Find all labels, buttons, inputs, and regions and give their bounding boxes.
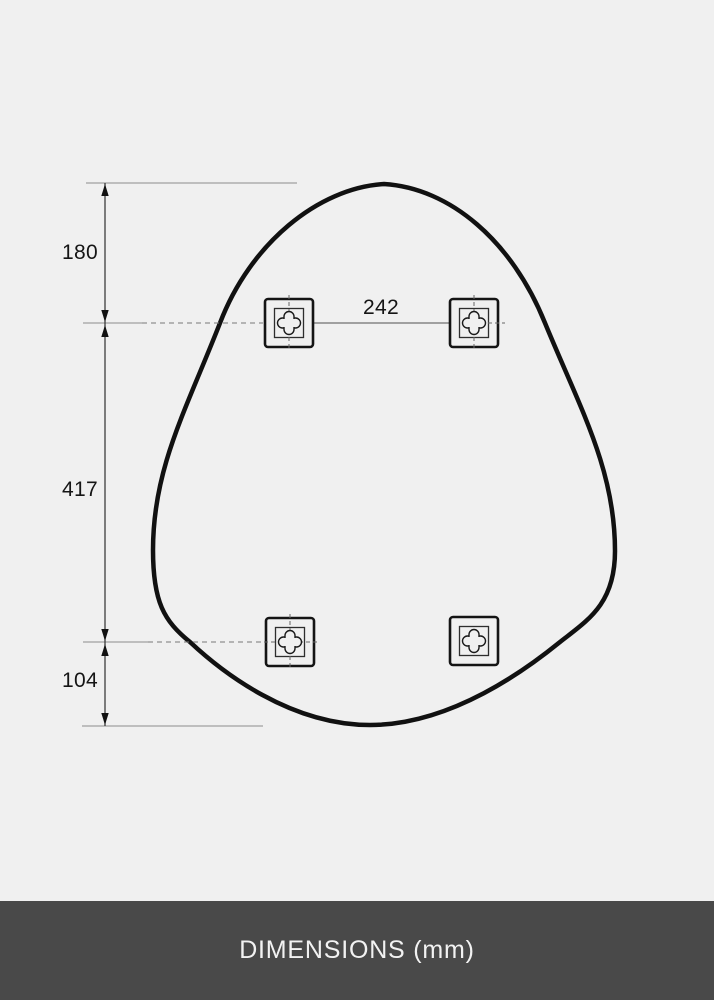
arrowhead-up-top xyxy=(101,184,108,196)
dimension-diagram: 180 242 417 104 xyxy=(0,0,714,901)
dim-label-hole-spacing: 242 xyxy=(339,297,423,319)
dim-label-bottom-offset: 104 xyxy=(52,670,98,692)
arrowhead-down-bottom xyxy=(101,713,108,725)
footer-title: DIMENSIONS (mm) xyxy=(239,936,475,965)
arrowhead-down-at-lower-holes xyxy=(101,629,108,641)
diagram-drawing xyxy=(0,0,714,901)
mount-bracket-top-right xyxy=(450,295,505,351)
dim-label-middle-span: 417 xyxy=(52,479,98,501)
arrowhead-up-below-upper-holes xyxy=(101,325,108,337)
footer-bar: DIMENSIONS (mm) xyxy=(0,901,714,1000)
product-dimension-sheet: 180 242 417 104 DIMENSIONS (mm) xyxy=(0,0,714,1000)
dim-label-top-offset: 180 xyxy=(52,242,98,264)
mirror-outline xyxy=(153,184,615,725)
arrowhead-up-below-lower-holes xyxy=(101,644,108,656)
arrowhead-down-at-upper-holes xyxy=(101,310,108,322)
mount-bracket-bottom-right xyxy=(450,617,498,665)
mount-bracket-bottom-left xyxy=(264,614,320,670)
mount-bracket-top-left xyxy=(265,295,313,351)
